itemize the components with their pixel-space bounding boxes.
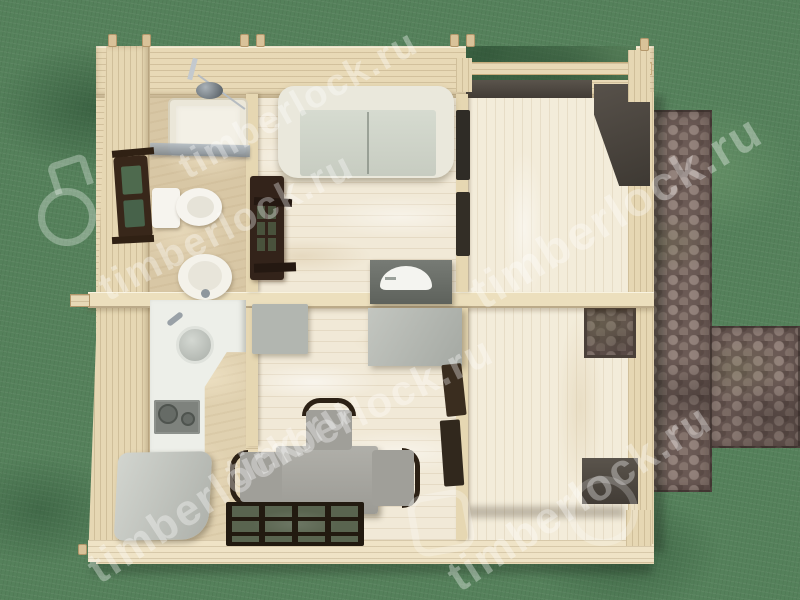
dining-cabinet bbox=[252, 304, 308, 354]
veranda-door-opening-east bbox=[584, 306, 636, 358]
log-end bbox=[640, 38, 649, 51]
veranda-roof-beam bbox=[456, 62, 652, 75]
tv-label-line bbox=[385, 277, 396, 280]
veranda-post-nw bbox=[456, 58, 472, 92]
cobblestone-path-arm bbox=[710, 326, 800, 448]
living-veranda-window bbox=[456, 110, 470, 180]
living-veranda-window bbox=[456, 192, 470, 256]
bathroom-window bbox=[113, 155, 153, 239]
log-end bbox=[450, 34, 459, 47]
wall-divider-log-end bbox=[70, 294, 90, 307]
log-end bbox=[256, 34, 265, 47]
slatted-rug-cells bbox=[232, 506, 358, 542]
garden-scene: timberlock.ru timberlock.ru timberlock.r… bbox=[0, 0, 800, 600]
cooktop-burner bbox=[158, 404, 178, 424]
watermark-lock-icon-body bbox=[405, 487, 477, 559]
sink-faucet bbox=[201, 289, 210, 298]
veranda-wall-shadow-band bbox=[466, 80, 592, 98]
log-end bbox=[240, 34, 249, 47]
log-end bbox=[142, 34, 151, 47]
dining-chair-seat bbox=[372, 450, 414, 506]
watermark-lock-icon-body bbox=[38, 188, 96, 246]
sofa-cushion-divider bbox=[367, 112, 369, 174]
kitchen-sink bbox=[176, 326, 214, 364]
slatted-rug bbox=[226, 502, 364, 546]
window-pane bbox=[121, 165, 143, 194]
veranda-post-ne bbox=[628, 50, 650, 102]
log-end bbox=[108, 34, 117, 47]
watermark-lock-icon-body bbox=[568, 476, 638, 546]
log-end bbox=[466, 34, 475, 47]
cooktop-burner bbox=[181, 412, 195, 426]
shower-head bbox=[196, 82, 223, 99]
window-pane bbox=[123, 199, 145, 227]
door-trim-bar bbox=[254, 262, 296, 272]
watermark-lock-icon-shackle bbox=[46, 153, 94, 196]
